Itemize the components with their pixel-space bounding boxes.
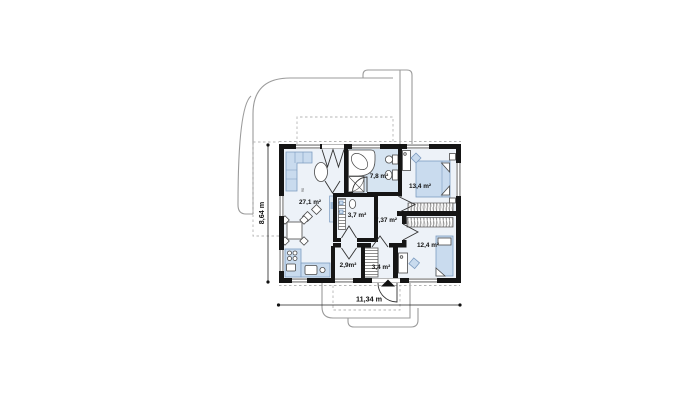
entry-closet-icon: [365, 248, 379, 277]
window: [409, 278, 437, 282]
height-dimension-label: 8,64 m: [257, 202, 266, 224]
dimension-bottom: 11,34 m: [277, 295, 462, 307]
washbasin-icon: [393, 155, 399, 164]
door-width-label: 90: [301, 188, 305, 192]
coffee-table-icon: [315, 163, 328, 182]
room-area-label: 27,1 m²: [299, 199, 321, 206]
cooktop-burner-icon: [293, 251, 297, 255]
room-area-label: 2,9m²: [340, 262, 357, 269]
dishwasher-icon: [305, 266, 317, 275]
room-area-label: 3,4 m²: [372, 264, 390, 271]
toilet-tank-icon: [393, 170, 399, 180]
stool-icon: [349, 200, 355, 209]
room-area-label: 12,4 m²: [417, 242, 439, 249]
cooktop-burner-icon: [288, 257, 292, 261]
window: [292, 278, 307, 282]
desk-icon: [399, 253, 408, 273]
shelf-box-icon: [340, 201, 344, 205]
room-area-label: 13,4 m²: [409, 183, 431, 190]
room-area-label: 3,7 m²: [348, 212, 366, 219]
desk-lamp-icon: [400, 256, 403, 259]
window: [352, 144, 380, 148]
window: [279, 250, 283, 271]
nightstand-icon: [450, 198, 456, 203]
oven-icon: [320, 267, 325, 272]
cooktop-burner-icon: [288, 251, 292, 255]
width-dimension-label: 11,34 m: [356, 295, 382, 304]
desk-lamp-icon: [404, 153, 407, 156]
window: [407, 144, 429, 148]
nightstand-icon: [450, 154, 456, 161]
cooktop-burner-icon: [293, 257, 297, 261]
kitchen-sink-icon: [287, 264, 296, 271]
dimension-left: 8,64 m: [257, 143, 270, 283]
window: [296, 144, 320, 148]
window: [279, 196, 283, 216]
shelf-box-icon: [340, 210, 344, 214]
room-area-label: 7,8 m²: [370, 173, 388, 180]
floor-plan: 27,1 m² 7,8 m² 13,4 m² 3,7 m² 7,37 m² 12…: [0, 0, 700, 400]
wardrobe-icon: [407, 218, 453, 228]
washbasin-bowl-icon: [385, 156, 392, 163]
dining-table-icon: [287, 222, 302, 239]
window: [335, 278, 353, 282]
window: [456, 163, 460, 196]
pillow-icon: [438, 238, 451, 245]
room-area-label: 7,37 m²: [375, 217, 397, 224]
